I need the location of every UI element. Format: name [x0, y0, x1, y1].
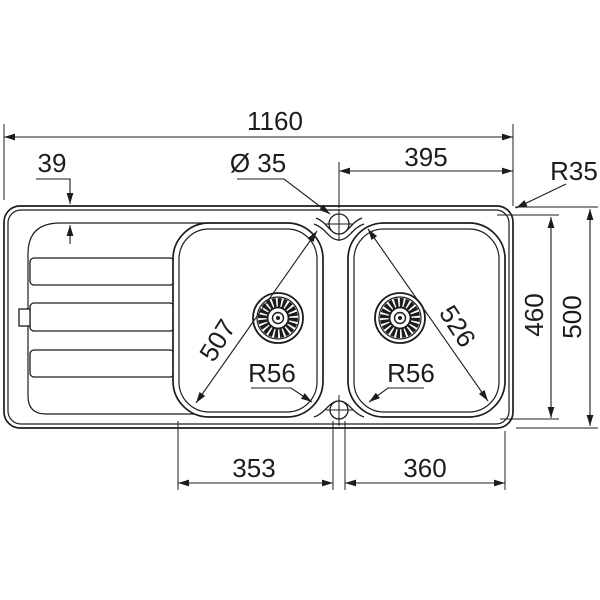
dim-label-right-bowl-radius: R56 [387, 358, 435, 388]
sink-technical-drawing: 1160 39 Ø 35 395 R35 460 500 507 526 R56… [0, 0, 600, 600]
leader-r35 [516, 184, 566, 208]
drawing-canvas: 1160 39 Ø 35 395 R35 460 500 507 526 R56… [0, 0, 600, 600]
dim-label-right-bowl-width: 360 [403, 453, 446, 483]
dim-label-rim-corner-radius: R35 [550, 156, 598, 186]
drainer-grooves [19, 258, 174, 377]
dim-label-left-bowl-radius: R56 [248, 358, 296, 388]
dim-label-left-bowl-width: 353 [232, 453, 275, 483]
dim-label-drainer-offset: 39 [38, 148, 67, 178]
leader-hole-diameter [237, 179, 330, 214]
drainer-groove [30, 350, 174, 377]
dim-leader-39-upper [36, 179, 70, 204]
drainer-groove [30, 303, 174, 331]
dim-label-basin-depth: 460 [519, 293, 549, 336]
dim-label-right-section-width: 395 [404, 142, 447, 172]
dim-label-hole-diameter: Ø 35 [230, 148, 286, 178]
dim-label-overall-width: 1160 [247, 106, 303, 136]
drainer-groove-tab [19, 309, 30, 326]
dim-label-overall-depth: 500 [557, 295, 587, 338]
overflow-hole [326, 395, 353, 426]
drainer-groove [30, 258, 174, 285]
